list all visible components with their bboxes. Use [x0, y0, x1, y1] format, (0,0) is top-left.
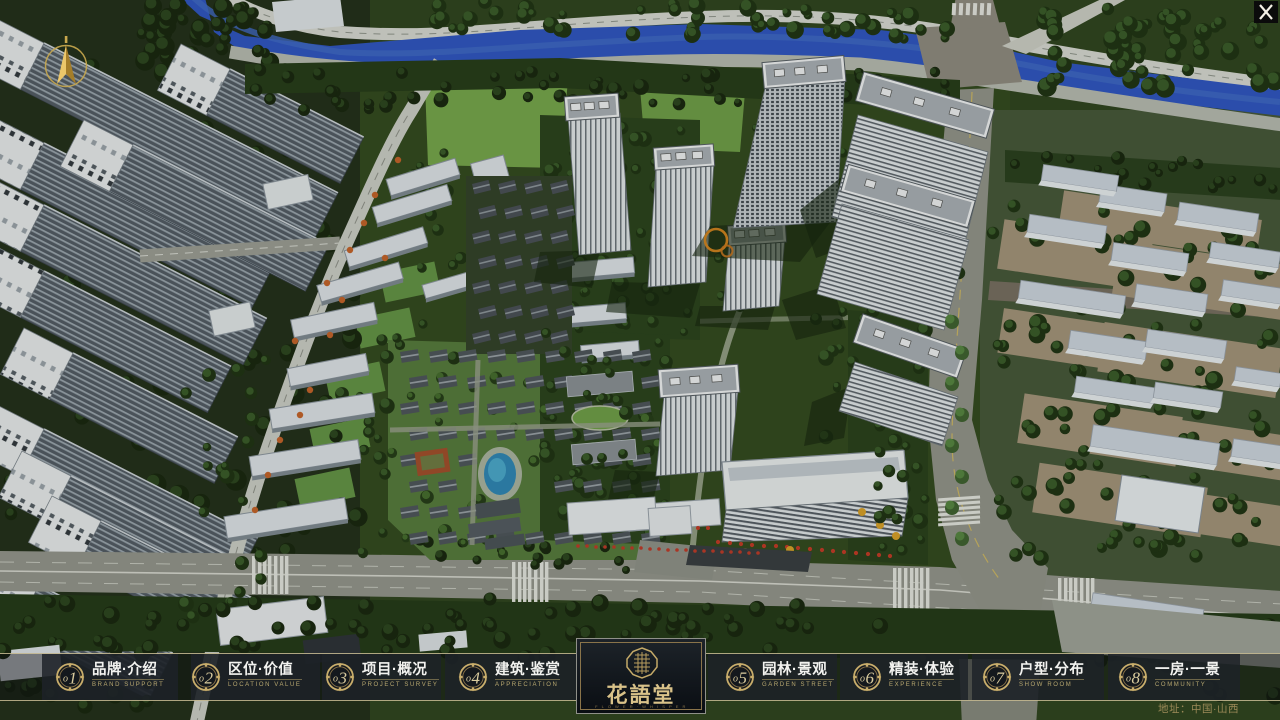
svg-text:2: 2: [205, 669, 214, 688]
svg-text:4: 4: [472, 669, 481, 688]
svg-text:3: 3: [338, 669, 348, 688]
svg-text:6: 6: [866, 669, 875, 688]
svg-text:o: o: [466, 674, 471, 685]
svg-text:o: o: [990, 674, 995, 685]
svg-text:o: o: [199, 674, 204, 685]
svg-text:o: o: [733, 674, 738, 685]
svg-text:5: 5: [739, 669, 748, 688]
svg-text:8: 8: [1132, 669, 1141, 688]
svg-text:1: 1: [69, 669, 78, 688]
svg-text:o: o: [333, 674, 338, 685]
svg-text:o: o: [1126, 674, 1131, 685]
svg-text:o: o: [63, 674, 68, 685]
svg-text:o: o: [860, 674, 865, 685]
